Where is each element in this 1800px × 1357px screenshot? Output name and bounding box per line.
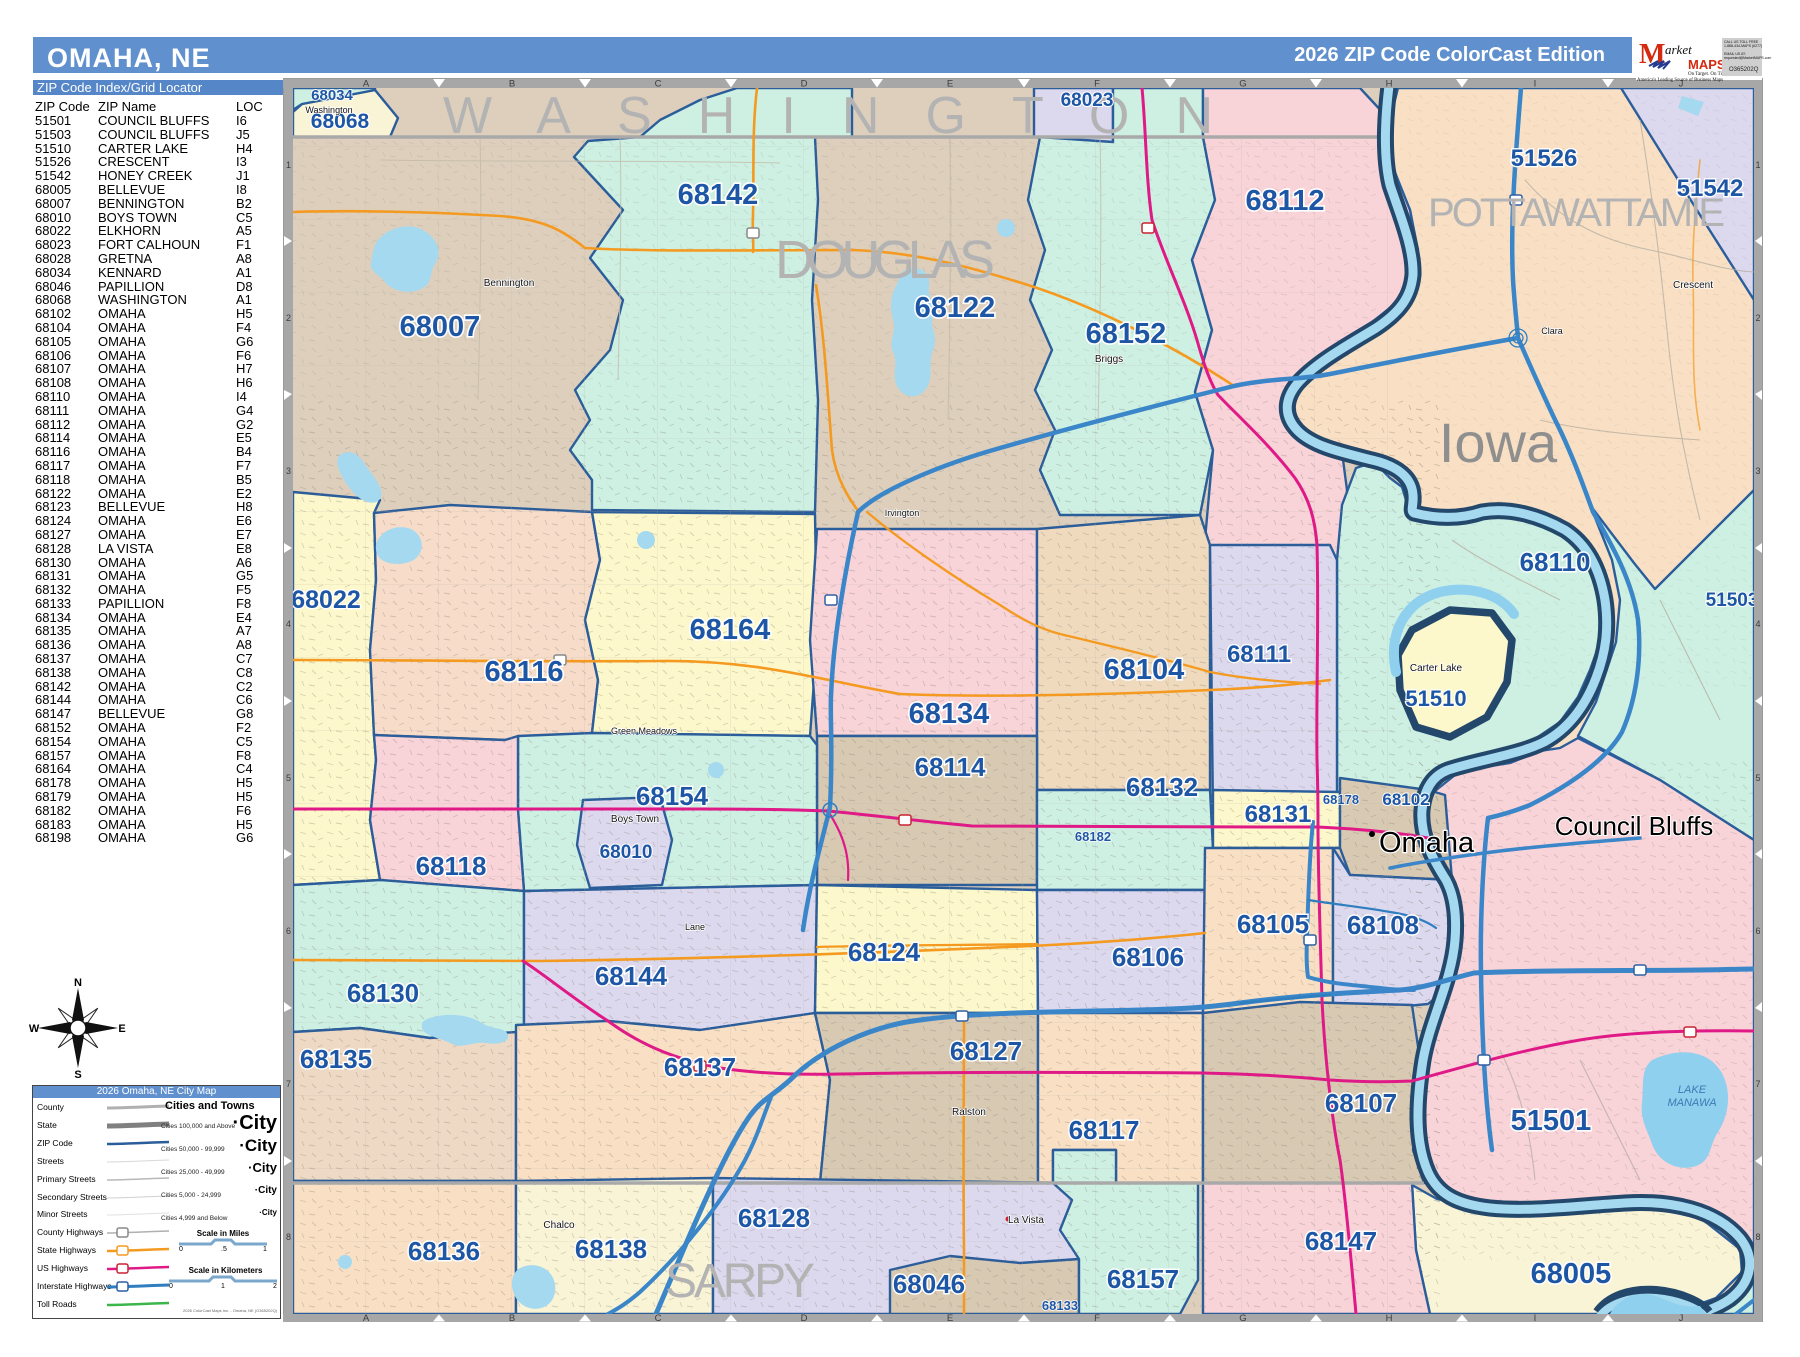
svg-text:LAKE: LAKE bbox=[1678, 1084, 1707, 1096]
svg-text:51526: 51526 bbox=[1511, 145, 1578, 172]
svg-text:2: 2 bbox=[273, 1283, 277, 1289]
svg-text:68110: 68110 bbox=[1520, 547, 1591, 577]
svg-text:0: 0 bbox=[179, 1246, 183, 1252]
svg-text:7: 7 bbox=[286, 1079, 291, 1089]
svg-text:W: W bbox=[29, 1023, 40, 1035]
svg-text:3: 3 bbox=[286, 466, 291, 476]
svg-text:68131: 68131 bbox=[1245, 801, 1312, 828]
svg-text:68134: 68134 bbox=[909, 698, 990, 730]
svg-text:Washington: Washington bbox=[305, 105, 352, 115]
svg-text:Carter Lake: Carter Lake bbox=[1410, 663, 1463, 674]
svg-text:5: 5 bbox=[286, 773, 291, 783]
svg-text:1: 1 bbox=[1755, 160, 1760, 170]
svg-text:Boys Town: Boys Town bbox=[611, 814, 659, 825]
svg-text:N: N bbox=[74, 978, 82, 989]
svg-text:A: A bbox=[363, 79, 370, 90]
svg-text:68111: 68111 bbox=[1227, 641, 1291, 668]
svg-text:SARPY: SARPY bbox=[665, 1255, 815, 1308]
svg-text:51501: 51501 bbox=[1511, 1105, 1592, 1137]
svg-text:.5: .5 bbox=[221, 1246, 227, 1252]
svg-text:0: 0 bbox=[169, 1283, 173, 1289]
svg-text:51510: 51510 bbox=[1405, 686, 1466, 711]
svg-text:La Vista: La Vista bbox=[1008, 1215, 1044, 1226]
svg-text:68133: 68133 bbox=[1042, 1298, 1078, 1313]
svg-text:4: 4 bbox=[286, 619, 291, 629]
svg-text:C: C bbox=[655, 1313, 662, 1324]
svg-text:68005: 68005 bbox=[1531, 1258, 1612, 1290]
svg-text:68164: 68164 bbox=[690, 614, 771, 646]
svg-text:Iowa: Iowa bbox=[1439, 411, 1558, 474]
svg-text:68122: 68122 bbox=[915, 292, 996, 324]
svg-text:D: D bbox=[801, 1313, 808, 1324]
svg-text:68135: 68135 bbox=[300, 1044, 372, 1074]
svg-text:68102: 68102 bbox=[1382, 790, 1429, 809]
svg-text:F: F bbox=[1094, 1313, 1100, 1324]
svg-text:F: F bbox=[1094, 79, 1100, 90]
svg-text:68137: 68137 bbox=[664, 1052, 736, 1082]
svg-text:Briggs: Briggs bbox=[1095, 354, 1123, 365]
svg-text:6: 6 bbox=[286, 926, 291, 936]
svg-text:MAPS: MAPS bbox=[1688, 57, 1726, 72]
svg-text:51542: 51542 bbox=[1677, 175, 1744, 202]
svg-text:68182: 68182 bbox=[1075, 829, 1111, 844]
svg-text:Bennington: Bennington bbox=[484, 278, 535, 289]
svg-text:H: H bbox=[1386, 79, 1393, 90]
svg-text:Council Bluffs: Council Bluffs bbox=[1555, 811, 1714, 841]
svg-text:68128: 68128 bbox=[738, 1203, 810, 1233]
svg-text:Green Meadows: Green Meadows bbox=[611, 726, 678, 736]
svg-text:3: 3 bbox=[1755, 466, 1760, 476]
svg-text:68130: 68130 bbox=[347, 978, 419, 1008]
svg-text:8: 8 bbox=[286, 1232, 291, 1242]
svg-text:68124: 68124 bbox=[848, 937, 921, 967]
svg-text:Lane: Lane bbox=[685, 922, 705, 932]
svg-text:I: I bbox=[1534, 1313, 1537, 1324]
svg-text:2: 2 bbox=[286, 313, 291, 323]
svg-text:7: 7 bbox=[1755, 1079, 1760, 1089]
svg-text:E: E bbox=[947, 79, 953, 90]
svg-text:8: 8 bbox=[1755, 1232, 1760, 1242]
svg-text:E: E bbox=[118, 1023, 125, 1035]
svg-text:1: 1 bbox=[286, 160, 291, 170]
svg-text:5: 5 bbox=[1755, 773, 1760, 783]
svg-text:Chalco: Chalco bbox=[543, 1220, 575, 1231]
svg-text:G: G bbox=[1239, 79, 1246, 90]
svg-text:68157: 68157 bbox=[1107, 1264, 1179, 1294]
svg-text:D: D bbox=[801, 79, 808, 90]
svg-text:arket: arket bbox=[1665, 42, 1692, 57]
svg-text:6: 6 bbox=[1755, 926, 1760, 936]
svg-text:68107: 68107 bbox=[1325, 1088, 1397, 1118]
svg-text:68112: 68112 bbox=[1245, 185, 1324, 217]
svg-text:J: J bbox=[1679, 1313, 1684, 1324]
svg-text:Clara: Clara bbox=[1541, 326, 1563, 336]
svg-text:E: E bbox=[947, 1313, 953, 1324]
svg-text:4: 4 bbox=[1755, 619, 1760, 629]
svg-text:68010: 68010 bbox=[600, 842, 653, 863]
svg-text:B: B bbox=[509, 79, 515, 90]
svg-text:A: A bbox=[363, 1313, 370, 1324]
svg-text:Crescent: Crescent bbox=[1673, 280, 1713, 291]
svg-text:68034: 68034 bbox=[311, 87, 353, 104]
svg-text:68117: 68117 bbox=[1069, 1115, 1140, 1145]
svg-text:C: C bbox=[655, 79, 662, 90]
svg-text:68127: 68127 bbox=[950, 1036, 1022, 1066]
svg-text:68154: 68154 bbox=[636, 781, 709, 811]
svg-text:68136: 68136 bbox=[408, 1236, 480, 1266]
svg-text:68046: 68046 bbox=[893, 1269, 965, 1299]
svg-text:Omaha: Omaha bbox=[1379, 827, 1475, 859]
svg-text:1: 1 bbox=[263, 1246, 267, 1252]
svg-text:H: H bbox=[1386, 1313, 1393, 1324]
svg-text:68116: 68116 bbox=[484, 656, 563, 688]
svg-text:68105: 68105 bbox=[1237, 909, 1309, 939]
svg-text:68023: 68023 bbox=[1061, 90, 1114, 111]
svg-text:68007: 68007 bbox=[400, 311, 481, 343]
svg-text:B: B bbox=[509, 1313, 515, 1324]
svg-text:51503: 51503 bbox=[1706, 590, 1759, 611]
svg-text:68152: 68152 bbox=[1086, 318, 1167, 350]
svg-text:Ralston: Ralston bbox=[952, 1107, 986, 1118]
svg-text:68114: 68114 bbox=[915, 752, 986, 782]
svg-text:1: 1 bbox=[221, 1283, 225, 1289]
svg-text:68144: 68144 bbox=[595, 961, 668, 991]
svg-text:68178: 68178 bbox=[1323, 792, 1359, 807]
svg-text:S: S bbox=[74, 1069, 81, 1078]
svg-text:DOUGLAS: DOUGLAS bbox=[775, 230, 995, 290]
svg-text:2: 2 bbox=[1755, 313, 1760, 323]
svg-text:68104: 68104 bbox=[1104, 654, 1185, 686]
svg-text:MANAWA: MANAWA bbox=[1667, 1097, 1716, 1109]
svg-text:68022: 68022 bbox=[291, 586, 361, 614]
svg-text:68108: 68108 bbox=[1347, 910, 1419, 940]
svg-text:68118: 68118 bbox=[416, 851, 487, 881]
svg-text:68106: 68106 bbox=[1112, 942, 1184, 972]
svg-text:America's Leading Source of B: America's Leading Source of Business Map… bbox=[1637, 78, 1723, 83]
svg-text:Irvington: Irvington bbox=[885, 508, 920, 518]
svg-text:68138: 68138 bbox=[575, 1234, 647, 1264]
svg-text:I: I bbox=[1534, 79, 1537, 90]
svg-text:68132: 68132 bbox=[1126, 772, 1198, 802]
svg-text:68147: 68147 bbox=[1305, 1226, 1377, 1256]
svg-text:G: G bbox=[1239, 1313, 1246, 1324]
svg-text:68142: 68142 bbox=[678, 179, 759, 211]
